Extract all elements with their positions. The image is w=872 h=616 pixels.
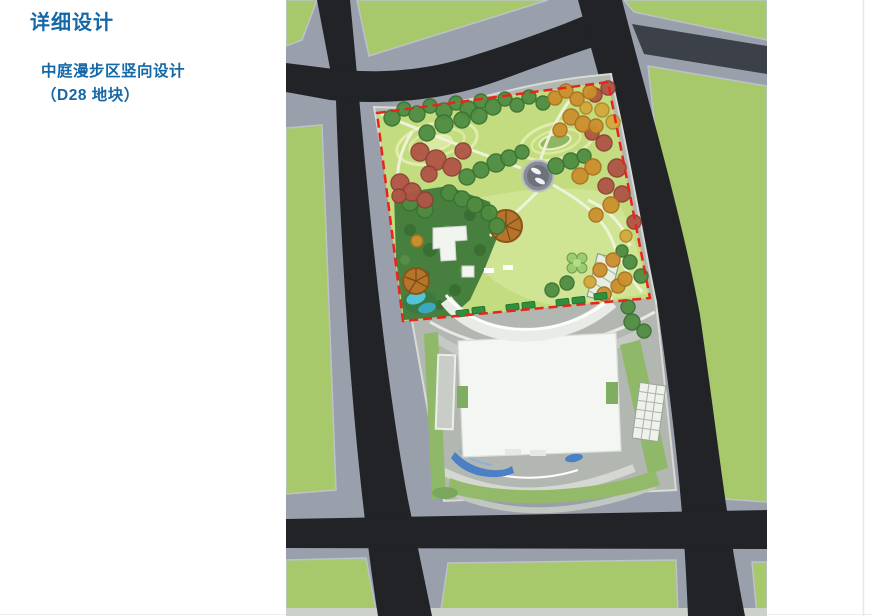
- tree-icon: [606, 115, 620, 129]
- tree-icon: [467, 197, 483, 213]
- tree-icon: [603, 197, 619, 213]
- tree-icon: [392, 189, 406, 203]
- tree-icon: [435, 115, 453, 133]
- tree-icon: [417, 192, 433, 208]
- city-block: [286, 558, 377, 616]
- tree-icon: [454, 112, 470, 128]
- tree-icon: [620, 230, 632, 242]
- presentation-slide: 详细设计 中庭漫步区竖向设计 （D28 地块）: [0, 0, 872, 616]
- tree-icon: [589, 208, 603, 222]
- tree-icon: [593, 263, 607, 277]
- tree-icon: [618, 272, 632, 286]
- city-block: [440, 560, 678, 616]
- tree-icon: [545, 283, 559, 297]
- map-canvas: [286, 0, 767, 616]
- tree-icon: [471, 108, 487, 124]
- tree-icon: [560, 276, 574, 290]
- tree-icon: [443, 158, 461, 176]
- tree-icon: [583, 85, 597, 99]
- tree-icon: [421, 166, 437, 182]
- tree-icon: [584, 276, 596, 288]
- pavilion-footprint-small: [462, 266, 474, 277]
- tree-icon: [606, 253, 620, 267]
- tree-icon: [510, 98, 524, 112]
- ramp: [436, 355, 456, 430]
- specimen-tree-large: [403, 268, 429, 294]
- tree-icon: [572, 168, 588, 184]
- tree-icon: [589, 119, 603, 133]
- tree-icon: [419, 125, 435, 141]
- tree-icon: [489, 218, 505, 234]
- tree-icon: [411, 235, 423, 247]
- tree-icon: [637, 324, 651, 338]
- tree-icon: [621, 300, 635, 314]
- tree-icon: [623, 255, 637, 269]
- tree-icon: [515, 145, 529, 159]
- main-building: [457, 329, 621, 457]
- tree-icon: [595, 103, 609, 117]
- tree-icon: [548, 158, 564, 174]
- tree-icon: [580, 102, 592, 114]
- tree-icon: [598, 178, 614, 194]
- tree-icon: [459, 169, 475, 185]
- tree-icon: [596, 135, 612, 151]
- tree-icon: [553, 123, 567, 137]
- tree-icon: [455, 143, 471, 159]
- clover-tree: [567, 253, 587, 273]
- site-plan-image: [0, 0, 872, 616]
